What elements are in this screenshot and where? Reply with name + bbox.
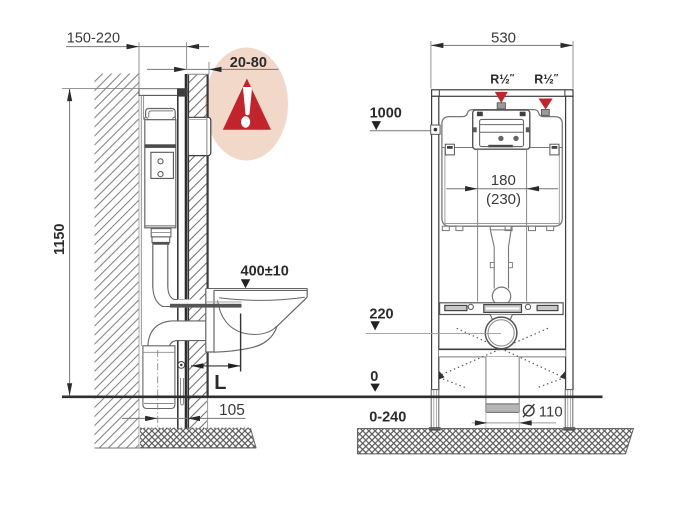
svg-text:L: L	[214, 372, 226, 394]
svg-text:150-220: 150-220	[67, 30, 120, 46]
svg-text:180: 180	[491, 172, 516, 189]
svg-text:400±10: 400±10	[241, 264, 289, 280]
svg-text:20-80: 20-80	[230, 55, 267, 71]
svg-text:530: 530	[491, 30, 516, 47]
svg-text:0-240: 0-240	[369, 410, 406, 426]
svg-text:1150: 1150	[52, 224, 68, 255]
svg-text:110: 110	[539, 403, 563, 420]
svg-text:(230): (230)	[486, 191, 521, 208]
svg-text:0: 0	[370, 369, 378, 385]
svg-text:1000: 1000	[370, 106, 402, 122]
svg-text:220: 220	[369, 307, 393, 323]
svg-text:105: 105	[219, 402, 245, 419]
